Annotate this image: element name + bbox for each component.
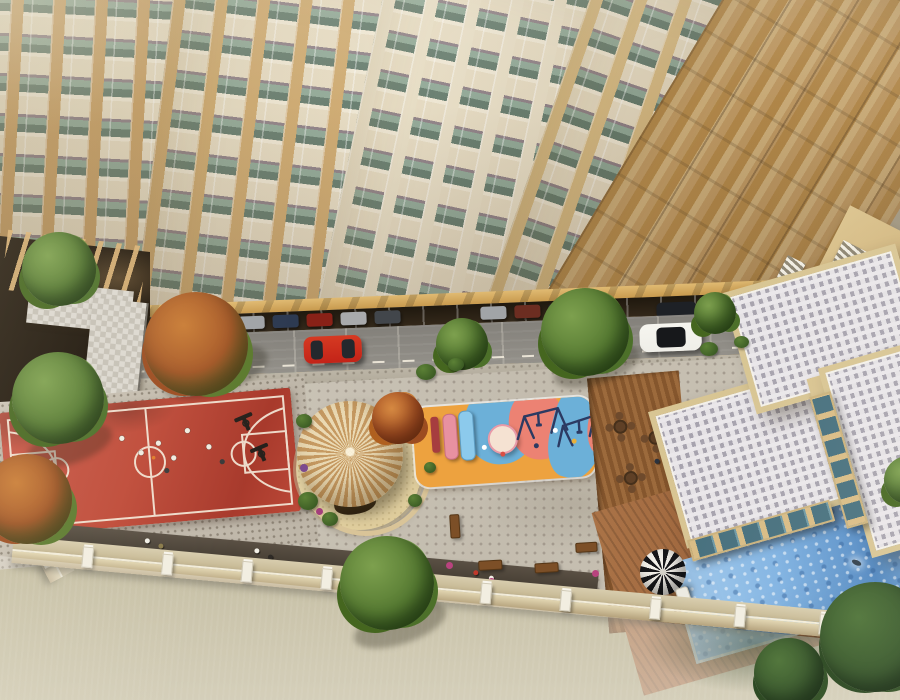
tree-green-left (12, 352, 104, 444)
shrub-roadside (416, 364, 436, 380)
bench (534, 562, 559, 573)
shrub (298, 492, 318, 510)
shrub (424, 462, 436, 473)
shrub-roadside (448, 358, 464, 371)
flower-cluster-magenta (446, 562, 453, 569)
tree-rust-playground (372, 392, 424, 444)
boundary-post (734, 606, 747, 628)
cafe-table (623, 470, 638, 485)
tree-dark-bottom (754, 638, 824, 700)
white-suv (639, 322, 702, 352)
boundary-post (649, 598, 662, 620)
red-car-windshield (310, 341, 322, 360)
boundary-post (320, 568, 333, 590)
tree-green-boundary (340, 536, 434, 630)
swimmer (851, 559, 862, 568)
shrub (296, 414, 312, 428)
parked-car (306, 313, 333, 327)
shrub (322, 512, 338, 526)
bench (575, 542, 598, 553)
shrub (408, 494, 422, 507)
tree-green-left-top (22, 232, 96, 306)
flower-cluster-purple (300, 464, 308, 472)
boundary-post (81, 546, 94, 568)
white-suv-roof (657, 327, 686, 348)
court-players (119, 425, 226, 477)
boundary-post (161, 554, 174, 576)
red-car (303, 335, 362, 364)
boundary-post (480, 583, 493, 605)
hoop-structures (234, 411, 273, 466)
person-sitting (254, 548, 259, 553)
shrub-roadside (700, 342, 718, 356)
parked-car (514, 305, 541, 319)
parked-car (272, 314, 299, 328)
tree-green-road (541, 288, 629, 376)
red-car-rear-glass (342, 339, 355, 358)
parked-car (480, 306, 507, 320)
person-on-deck (654, 459, 659, 464)
boundary-post (559, 590, 572, 612)
tree-rust-large (144, 292, 248, 396)
shrub-roadside (734, 336, 749, 348)
bench (449, 514, 460, 539)
bench (478, 559, 503, 570)
aerial-render-scene (0, 0, 900, 700)
cafe-table (613, 419, 628, 434)
flower-cluster-magenta (592, 570, 599, 577)
parked-car (374, 310, 401, 324)
boundary-post (241, 561, 254, 583)
person-sitting (145, 538, 150, 543)
flower-cluster-magenta (316, 508, 323, 515)
parked-car (340, 311, 367, 325)
tree-green-clubhouse (694, 292, 736, 334)
